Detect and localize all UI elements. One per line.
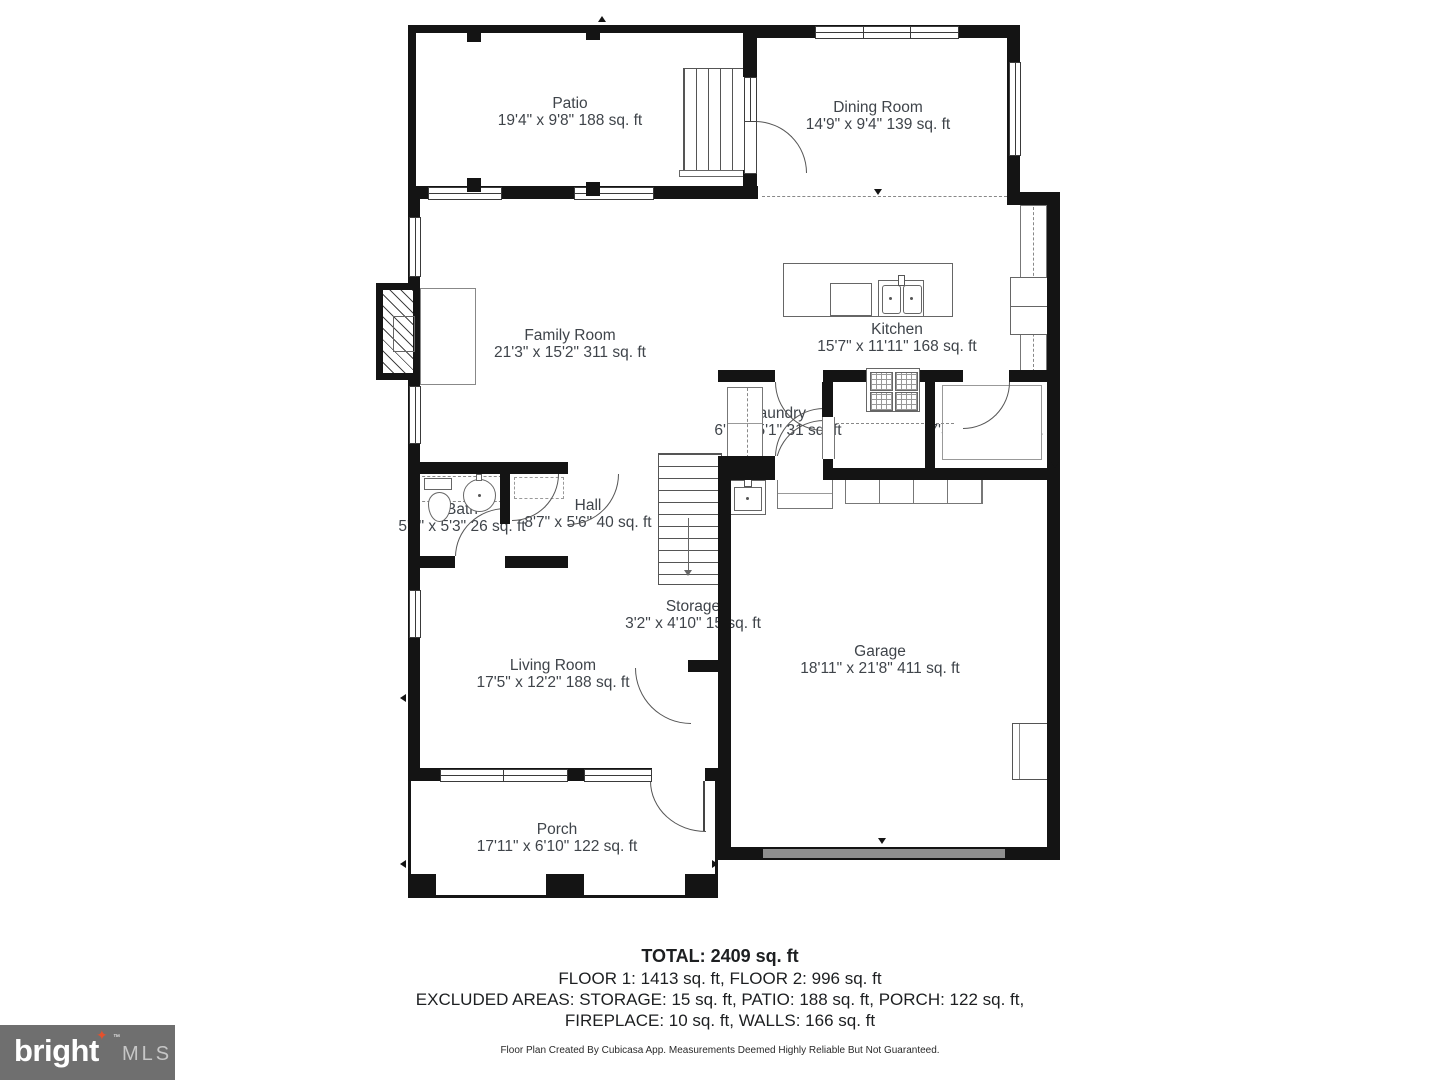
patio-post [586,26,600,40]
burner-icon [895,372,918,391]
logo-trademark: ™ [113,1034,120,1041]
corridor-open-line [836,423,954,424]
logo-suffix: MLS [122,1043,172,1066]
wall-stairwell-lower [743,170,757,199]
room-label-living: Living Room 17'5" x 12'2" 188 sq. ft [476,657,629,691]
sink-drain-dot [889,297,892,300]
window-mullion [910,27,911,38]
wall-patio-top [408,25,745,33]
wall-bath-divider [500,462,510,524]
window-mullion [503,770,504,781]
room-dims: 18'11" x 21'8" 411 sq. ft [800,660,959,677]
room-dims: 3'2" x 4'10" 15 sq. ft [625,615,761,632]
garage-entry-opening [775,468,823,480]
laundry-dashed-line [747,388,748,458]
room-dims: 14'9" x 9'4" 139 sq. ft [806,116,950,133]
sink-drain-dot [746,497,749,500]
family-left-window-1 [409,217,421,277]
wall-garage-top [718,468,1060,480]
direction-marker [878,838,886,844]
disclaimer: Floor Plan Created By Cubicasa App. Meas… [0,1045,1440,1056]
garage-cabinet-2 [845,477,983,504]
washer-dryer [727,387,763,459]
dining-open-line [762,196,1007,197]
logo-star-icon: ✦ [96,1027,108,1044]
room-name: Kitchen [817,321,976,338]
burner-icon [895,392,918,411]
wall-patio-left [408,25,416,195]
island-sink [878,280,924,317]
porch-post [685,874,718,898]
room-name: Patio [498,95,642,112]
storage-door-swing [635,668,691,724]
summary-floors: FLOOR 1: 1413 sq. ft, FLOOR 2: 996 sq. f… [0,969,1440,989]
faucet-icon [898,275,905,286]
direction-marker [598,16,606,22]
stairs-down-arrow [684,570,692,576]
room-name: Dining Room [806,99,950,116]
porch-post [408,874,436,898]
wall-stairwell-upper [743,25,757,77]
living-left-window [409,590,421,638]
wall-storage-bottom [688,660,720,672]
patio-post [467,28,481,42]
direction-marker [1051,462,1059,468]
patio-stairs-base [679,170,747,177]
living-bottom-window-2 [584,769,652,782]
bath-door-opening [455,556,505,568]
room-label-garage: Garage 18'11" x 21'8" 411 sq. ft [800,643,959,677]
burner-icon [870,372,893,391]
wall-bath-top [408,462,568,474]
porch-post [546,874,584,898]
room-dims: 15'7" x 11'11" 168 sq. ft [817,338,976,355]
wall-right-outer [1047,192,1060,860]
stairs-direction-line [688,518,689,570]
wall-left-c [408,462,420,568]
patio-stairs [683,68,745,174]
room-label-kitchen: Kitchen 15'7" x 11'11" 168 sq. ft [817,321,976,355]
sink-drain-dot [478,494,481,497]
washer-dryer-divider [728,423,762,424]
room-name: Family Room [494,327,646,344]
wall-pantry-left [925,370,935,468]
dining-door-swing [755,121,807,173]
window-mullion [863,27,864,38]
dining-sidelight-window [744,77,757,123]
bath-sink-icon [463,479,496,512]
patio-post [467,178,481,192]
laundry-bottom-door-opening [775,456,823,468]
bath-faucet-icon [476,474,482,481]
dining-top-window [815,26,959,39]
garage-cabinet-1 [777,477,833,509]
patio-post [586,182,600,196]
direction-marker [712,860,718,868]
fireplace-firebox [393,316,415,352]
dining-door-leaf [744,121,757,174]
room-label-storage: Storage 3'2" x 4'10" 15 sq. ft [625,598,761,632]
island-cabinet [830,283,872,316]
summary-excluded-1: EXCLUDED AREAS: STORAGE: 15 sq. ft, PATI… [0,990,1440,1010]
water-heater-panel-line [1019,724,1020,779]
interior-stairs [658,453,722,585]
room-name: Storage [625,598,761,615]
burner-icon [870,392,893,411]
direction-marker [400,860,406,868]
room-label-dining: Dining Room 14'9" x 9'4" 139 sq. ft [806,99,950,133]
room-name: Living Room [476,657,629,674]
fireplace-hearth [420,288,476,385]
direction-marker [400,694,406,702]
toilet-tank [424,478,452,490]
direction-marker [874,189,882,195]
logo-wordmark: bright [14,1033,99,1069]
garage-sink [728,480,766,515]
floor-plan: Patio 19'4" x 9'8" 188 sq. ft Dining Roo… [0,0,1440,1080]
room-dims: 17'5" x 12'2" 188 sq. ft [476,674,629,691]
family-top-window-1 [428,187,502,200]
laundry-passage-opening [822,417,835,459]
garage-door [763,849,1005,858]
bright-mls-logo: bright ✦ ™ MLS [0,1025,175,1080]
room-dims: 21'3" x 15'2" 311 sq. ft [494,344,646,361]
dining-right-window [1009,62,1021,156]
front-door-opening [652,768,705,781]
cooktop [866,368,920,412]
pantry-door-opening [963,370,1009,382]
front-door-leaf [703,781,705,831]
room-label-patio: Patio 19'4" x 9'8" 188 sq. ft [498,95,642,129]
summary-total: TOTAL: 2409 sq. ft [0,946,1440,967]
family-left-window-2 [409,386,421,444]
water-heater [1012,723,1050,780]
laundry-top-door-opening [775,370,823,382]
room-label-family: Family Room 21'3" x 15'2" 311 sq. ft [494,327,646,361]
sink-drain-dot [910,297,913,300]
summary-excluded-2: FIREPLACE: 10 sq. ft, WALLS: 166 sq. ft [0,1011,1440,1031]
cabinet-shelf-line [778,493,832,494]
living-bottom-window-1 [440,769,568,782]
room-name: Garage [800,643,959,660]
room-dims: 19'4" x 9'8" 188 sq. ft [498,112,642,129]
